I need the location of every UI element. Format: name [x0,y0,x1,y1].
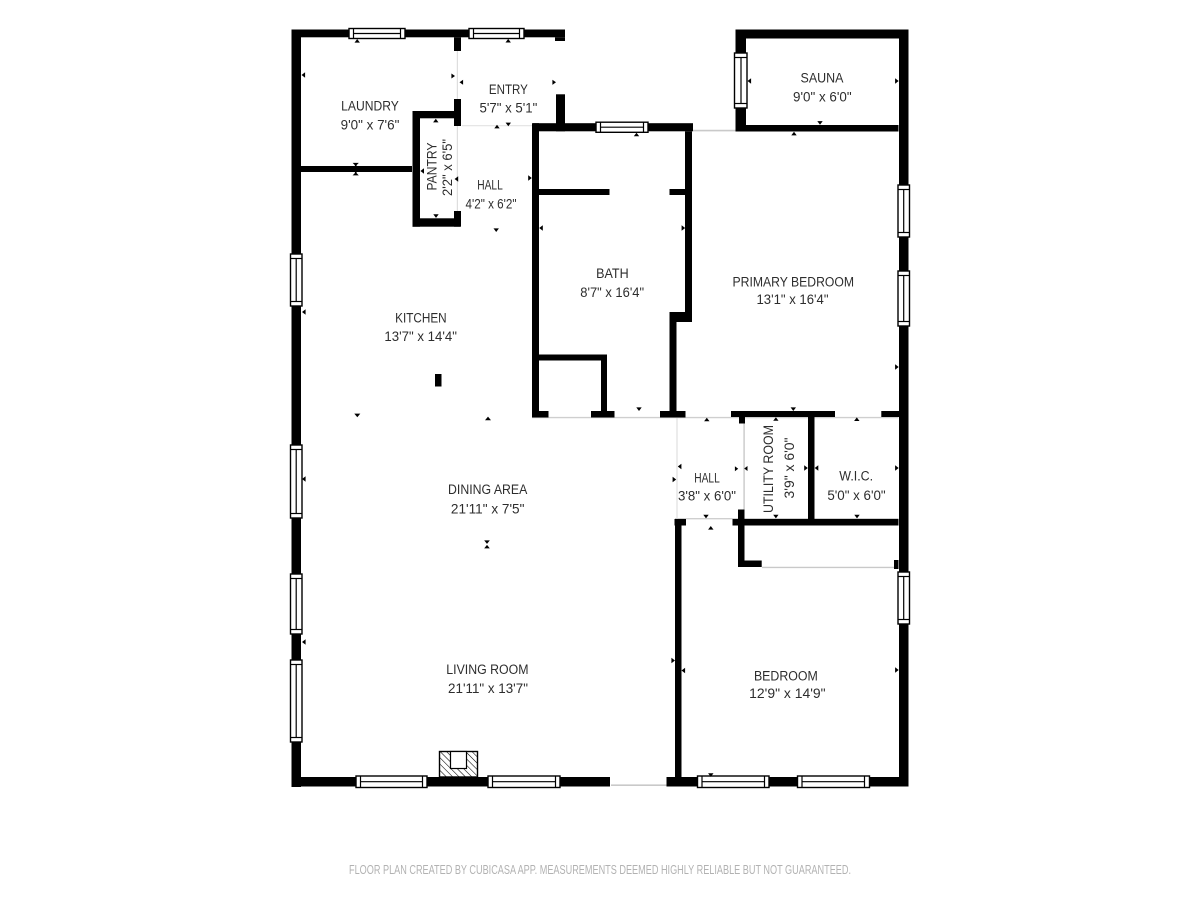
svg-text:PRIMARY BEDROOM: PRIMARY BEDROOM [733,275,855,290]
svg-text:13'1" x 16'4": 13'1" x 16'4" [757,292,829,307]
svg-text:12'9" x 14'9": 12'9" x 14'9" [749,686,826,701]
svg-text:PANTRY: PANTRY [425,143,440,191]
svg-text:W.I.C.: W.I.C. [839,468,873,483]
svg-text:3'8" x 6'0": 3'8" x 6'0" [678,489,736,504]
svg-text:21'11" x 7'5": 21'11" x 7'5" [451,501,525,516]
svg-text:LAUNDRY: LAUNDRY [341,99,399,114]
svg-text:3'9" x 6'0": 3'9" x 6'0" [782,437,797,498]
svg-text:SAUNA: SAUNA [801,70,844,85]
svg-text:LIVING ROOM: LIVING ROOM [446,662,528,677]
svg-text:9'0" x 7'6": 9'0" x 7'6" [341,118,400,133]
svg-text:HALL: HALL [477,178,503,193]
svg-text:2'2" x 6'5": 2'2" x 6'5" [440,139,455,196]
svg-text:HALL: HALL [694,470,720,485]
svg-text:KITCHEN: KITCHEN [395,311,447,326]
svg-text:13'7" x 14'4": 13'7" x 14'4" [384,329,457,344]
svg-text:BEDROOM: BEDROOM [754,668,818,683]
svg-text:5'0" x 6'0": 5'0" x 6'0" [827,488,885,503]
svg-text:8'7" x 16'4": 8'7" x 16'4" [580,285,644,300]
svg-text:BATH: BATH [596,266,629,281]
svg-text:UTILITY ROOM: UTILITY ROOM [761,425,776,513]
svg-text:DINING AREA: DINING AREA [448,482,527,497]
svg-text:5'7" x 5'1": 5'7" x 5'1" [480,101,538,116]
svg-text:21'11" x 13'7": 21'11" x 13'7" [448,681,528,696]
svg-text:9'0" x 6'0": 9'0" x 6'0" [793,89,852,104]
svg-text:ENTRY: ENTRY [489,82,528,97]
svg-text:4'2" x 6'2": 4'2" x 6'2" [466,196,517,211]
svg-text:FLOOR PLAN CREATED BY CUBICASA: FLOOR PLAN CREATED BY CUBICASA APP. MEAS… [349,863,851,877]
